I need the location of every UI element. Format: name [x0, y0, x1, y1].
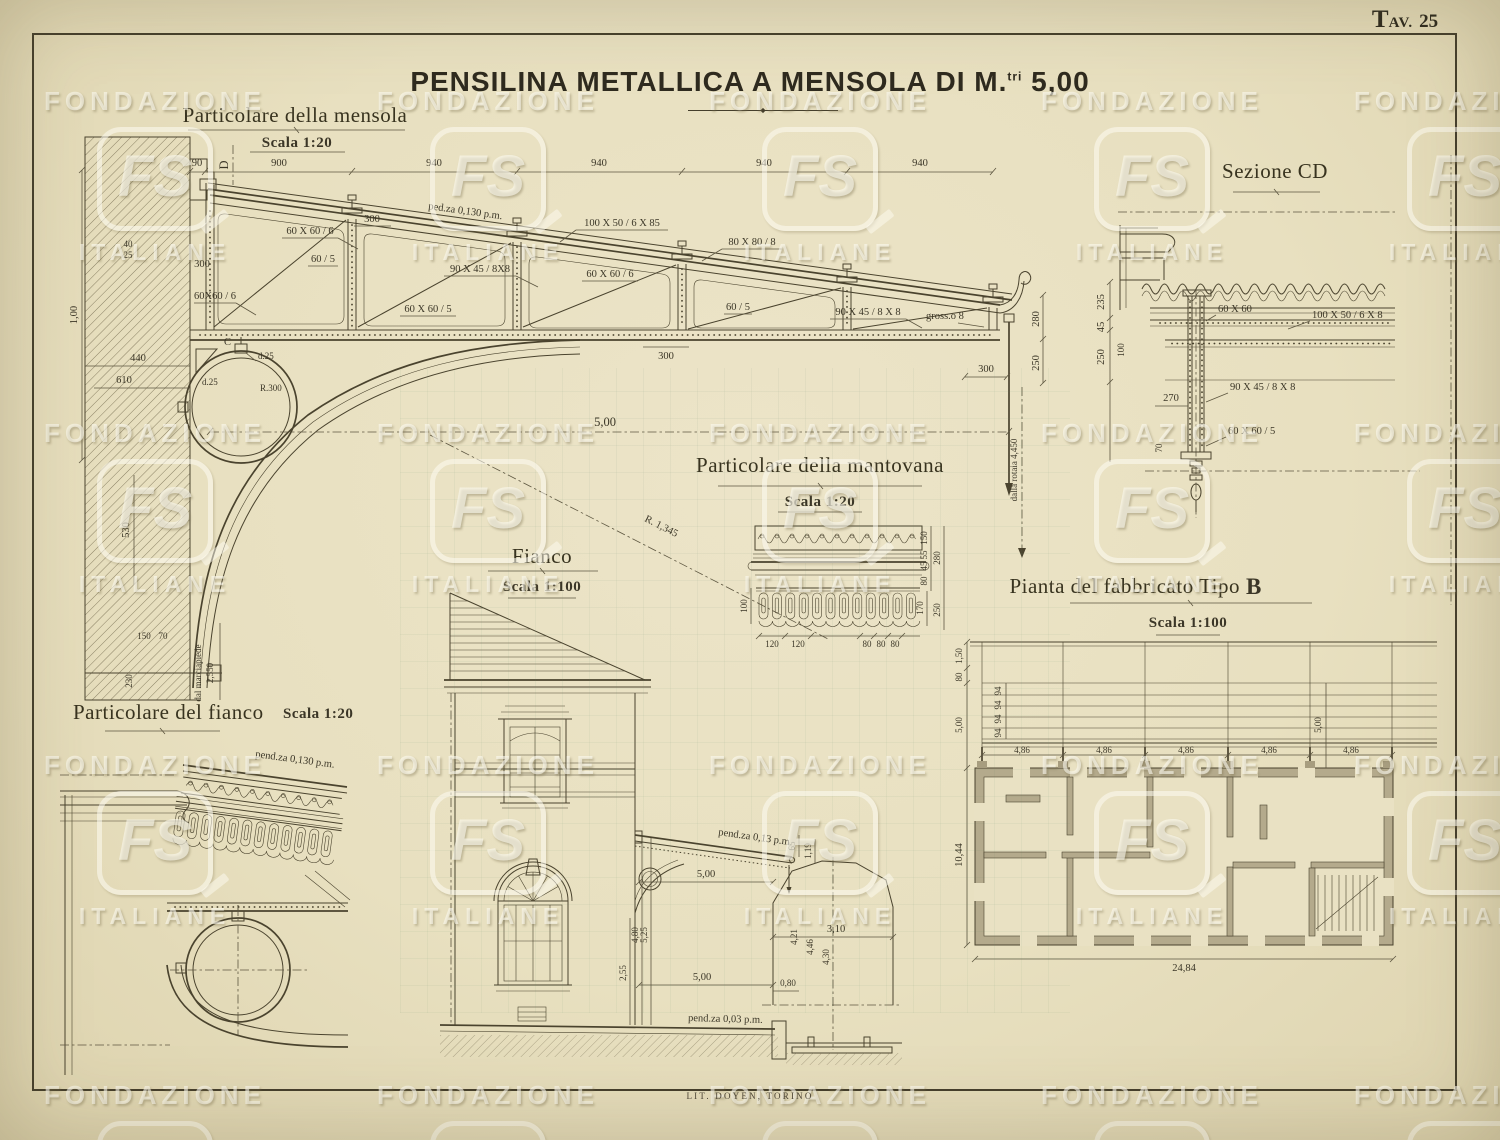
dim-label: d.25 — [202, 377, 218, 387]
size-note: 60 / 5 — [726, 302, 750, 313]
dim-label: 94 — [993, 728, 1003, 738]
lower-window — [494, 859, 572, 991]
mantovana-scale: Scala 1:20 — [785, 494, 855, 510]
dim-label: 250 — [1096, 349, 1107, 365]
size-note: 90 X 45 / 8X8 — [450, 264, 510, 275]
dim-label: 900 — [271, 158, 287, 169]
dim-label: 4,86 — [1178, 745, 1194, 755]
dim-label: 45 — [1096, 322, 1107, 333]
sezione-dimensions: 235 45 250 100 270 70 60 X 60 100 X 50 /… — [1096, 279, 1383, 462]
dim-label: 300 — [194, 259, 210, 270]
plate-number-value: 25 — [1419, 11, 1438, 32]
sheet-title: PENSILINA METALLICA A MENSOLA DI M.tri 5… — [0, 66, 1500, 98]
size-note: 60 X 60 / 5 — [1228, 426, 1275, 437]
size-note: 60 X 60 / 6 — [586, 269, 633, 280]
dim-label: 940 — [591, 158, 607, 169]
dim-label: 25 — [124, 250, 134, 260]
truss-vertical — [837, 264, 857, 330]
dim-label: 10,44 — [954, 842, 965, 866]
dim-label: 90 — [192, 158, 203, 169]
pianta-title: Pianta del fabbricato Tipo — [1009, 574, 1240, 598]
fianco-title: Fianco — [512, 544, 572, 568]
fianco-detail-title: Particolare del fianco — [73, 700, 264, 724]
dim-label: 530 — [121, 522, 132, 538]
section-marker-d: D — [217, 160, 231, 169]
slope-note: pend.za 0,03 p.m. — [688, 1013, 763, 1026]
sheet-title-tail: 5,00 — [1022, 66, 1089, 97]
fs-logo-watermark: FS — [1407, 1121, 1500, 1140]
dim-label: 940 — [426, 158, 442, 169]
sheet-title-main: PENSILINA METALLICA A MENSOLA DI M. — [410, 66, 1007, 97]
size-note: 100 X 50 / 6 X 85 — [584, 218, 660, 229]
plate-number-av: AV. — [1389, 15, 1414, 31]
sheet-title-sup: tri — [1007, 70, 1022, 84]
dim-label: 270 — [1163, 393, 1179, 404]
dim-label: 94 — [993, 700, 1003, 710]
fs-logo-watermark: FS — [430, 1121, 546, 1140]
canopy-plan-grid — [970, 642, 1437, 768]
dim-label: 250 — [1031, 355, 1042, 371]
dim-label: 440 — [130, 353, 146, 364]
slope-note: ped.za 0,130 p.m. — [428, 201, 503, 222]
pianta-title-b: B — [1246, 574, 1261, 599]
truss-vertical — [672, 241, 692, 330]
sezione-cd-drawing: Sezione CD — [1090, 150, 1480, 620]
size-note: 90 X 45 / 8 X 8 — [1230, 382, 1295, 393]
dim-label: 5,00 — [954, 717, 964, 733]
size-note: 60 / 5 — [311, 254, 335, 265]
title-underline — [688, 110, 838, 111]
size-note: 90 X 45 / 8 X 8 — [835, 307, 900, 318]
dim-label: 4,46 — [805, 939, 815, 955]
dim-label: 5,00 — [697, 869, 715, 880]
fianco-dimensions: pend.za 0,13 p.m. 5,00 65 1,19 4,21 4,46… — [618, 827, 896, 1026]
size-note: 80 X 80 / 8 — [728, 237, 775, 248]
dim-label: 150 — [137, 631, 151, 641]
dim-label: 0,80 — [780, 978, 796, 988]
fianco-scale: Scala 1:100 — [503, 579, 581, 595]
plate-number: TAV.25 — [1325, 6, 1485, 34]
dim-label: 940 — [912, 158, 928, 169]
dim-label: 5,00 — [594, 415, 616, 429]
dim-label: 300 — [978, 364, 994, 375]
drawing-sheet: TAV.25 PENSILINA METALLICA A MENSOLA DI … — [0, 0, 1500, 1140]
dim-label: 300 — [658, 351, 674, 362]
size-note: 60 X 60 — [1218, 304, 1252, 315]
dim-label: 940 — [756, 158, 772, 169]
dim-label: 4,86 — [1096, 745, 1112, 755]
fs-logo-watermark: FS — [762, 1121, 878, 1140]
pianta-scale: Scala 1:100 — [1149, 615, 1227, 631]
slope-note: pend.za 0,13 p.m. — [718, 827, 793, 848]
building-plan — [974, 761, 1394, 946]
pianta-drawing: Pianta del fabbricato Tipo B Scala 1:100 — [920, 555, 1480, 975]
fs-logo-watermark: FS — [1094, 1121, 1210, 1140]
dim-label: 4,86 — [1014, 745, 1030, 755]
dim-label: 4,86 — [1261, 745, 1277, 755]
dim-label: 4,86 — [1343, 745, 1359, 755]
station-building — [444, 593, 651, 1025]
dim-label: 300 — [364, 214, 380, 225]
section-marker-c: C — [224, 337, 231, 348]
size-note: 60 X 60 / 5 — [404, 304, 451, 315]
dim-label: 94 — [993, 686, 1003, 696]
dim-label: 65 — [787, 841, 797, 851]
dim-label: 610 — [116, 375, 132, 386]
dim-label: 280 — [1031, 311, 1042, 327]
dim-label: 150 — [919, 531, 929, 545]
dim-label: d.25 — [258, 351, 274, 361]
dim-label: 1,50 — [954, 648, 964, 664]
mensola-title: Particolare della mensola — [183, 103, 408, 127]
dim-label: 70 — [1154, 443, 1164, 453]
dim-label: 5,00 — [1313, 717, 1323, 733]
fianco-drawing: Fianco Scala 1:100 — [430, 545, 950, 1065]
fianco-detail-geometry — [60, 765, 350, 1075]
dim-label: 230 — [124, 674, 134, 688]
dim-label: 80 — [954, 672, 964, 682]
dim-label: 1,00 — [69, 306, 80, 324]
plate-number-t: T — [1372, 6, 1389, 33]
dim-label: R.300 — [260, 383, 282, 393]
fianco-detail-drawing: Particolare del fianco Scala 1:20 — [55, 695, 405, 1095]
sloped-valance — [170, 776, 346, 865]
size-note: gross.o 8 — [926, 311, 964, 322]
mantovana-title: Particolare della mantovana — [696, 453, 944, 477]
dim-label: 4,30 — [821, 949, 831, 965]
slope-note: pend.za 0,130 p.m. — [255, 749, 336, 771]
dim-label: dal marciapiede — [193, 644, 203, 701]
printer-credit: LIT. DOYEN, TORINO — [0, 1091, 1500, 1101]
dim-label: dalla rotaia 4,450 — [1009, 438, 1019, 501]
dim-label: 24,84 — [1172, 963, 1196, 974]
dim-label: 235 — [1096, 294, 1107, 310]
dim-label: 40 — [124, 239, 134, 249]
ring-brace — [178, 337, 297, 463]
support-wall — [85, 137, 222, 700]
size-note: 60 X 60 / 6 — [286, 226, 333, 237]
dim-label: 3,10 — [827, 924, 845, 935]
size-note: 60X60 / 6 — [194, 291, 236, 302]
dim-label: 94 — [993, 714, 1003, 724]
dim-label: 2,550 — [205, 662, 215, 683]
mensola-scale: Scala 1:20 — [262, 135, 332, 151]
upper-window — [498, 706, 572, 808]
dim-label: 1,19 — [803, 843, 813, 859]
dim-label: 5,00 — [693, 972, 711, 983]
sezione-title: Sezione CD — [1222, 159, 1328, 183]
size-note: 100 X 50 / 6 X 8 — [1312, 310, 1383, 321]
dim-label: 5,25 — [639, 927, 649, 943]
sezione-geometry — [1118, 155, 1451, 605]
fianco-detail-scale: Scala 1:20 — [283, 706, 353, 722]
dim-label: 100 — [1116, 343, 1126, 357]
fs-logo-watermark: FS — [97, 1121, 213, 1140]
dim-label: 2,55 — [618, 965, 628, 981]
dim-label: 70 — [159, 631, 169, 641]
